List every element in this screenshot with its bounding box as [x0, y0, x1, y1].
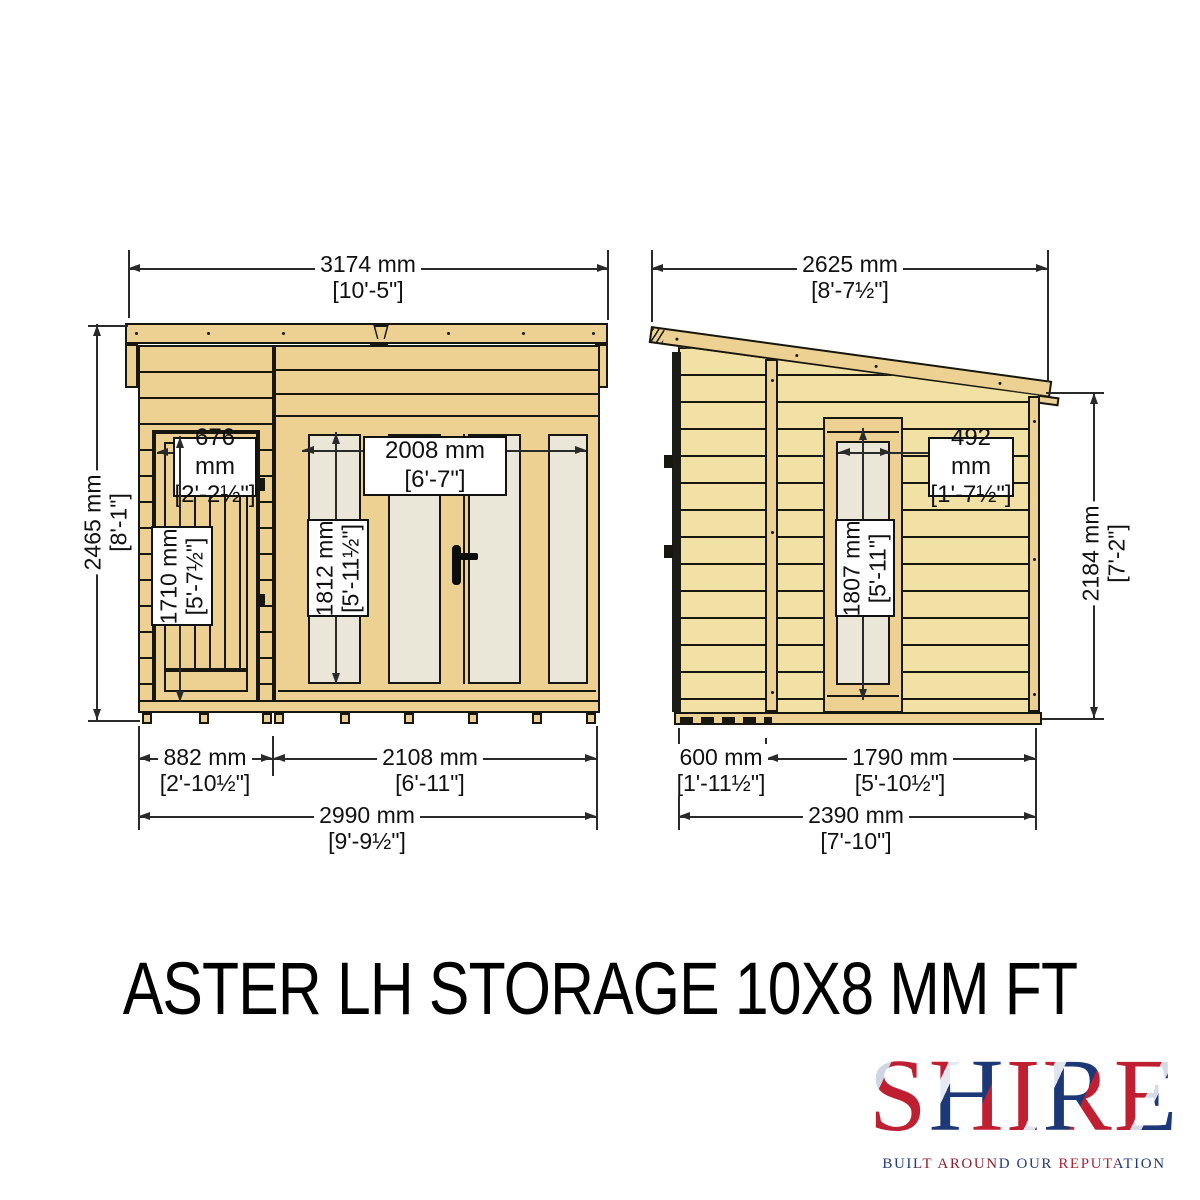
skid-foot — [340, 713, 350, 724]
drawing-canvas: 3174 mm [10'-5"] 2465 mm[8'-1"] 676 mm[2… — [0, 0, 1200, 1200]
nail-dot — [771, 531, 774, 534]
side-corner-edge — [672, 352, 681, 712]
shire-tagline: BUILT AROUND OUR REPUTATION — [858, 1156, 1190, 1173]
door-handle — [452, 545, 461, 585]
glazed-side-window-right — [548, 434, 588, 684]
dim-door-width: 676 mm[2'-2½"] — [173, 437, 257, 497]
nail-dot — [135, 332, 138, 335]
skid-foot — [262, 713, 272, 724]
dim-base-total: 2990 mm [9'-9½"] — [267, 802, 467, 855]
shire-logo-text: SHIRE — [858, 1044, 1190, 1148]
dim-door-height: 1710 mm[5'-7½"] — [151, 526, 213, 626]
glazed-unit-sill-line — [278, 690, 596, 692]
skid-foot — [468, 713, 478, 724]
dim-side-base-left: 600 mm [1'-11½"] — [651, 744, 791, 797]
front-wall-topband — [274, 345, 600, 417]
skid-foot — [274, 713, 284, 724]
dim-window-height: 1807 mm[5'-11"] — [835, 519, 895, 617]
nail-dot — [874, 365, 877, 368]
dim-base-right: 2108 mm [6'-11"] — [330, 744, 530, 797]
nail-dot — [282, 332, 285, 335]
dim-front-roof-width: 3174 mm [10'-5"] — [258, 251, 478, 304]
door-hinge — [256, 478, 265, 491]
skid-foot — [532, 713, 542, 724]
dim-base-left: 882 mm [2'-10½"] — [135, 744, 275, 797]
dim-window-width: 492 mm[1'-7½"] — [928, 437, 1014, 497]
nail-dot — [771, 691, 774, 694]
floor-bearers — [680, 717, 772, 723]
skid-foot — [142, 713, 152, 724]
dim-side-height: 2184 mm[7'-2"] — [1034, 483, 1174, 623]
nail-dot — [675, 337, 678, 340]
door-handle-lever — [460, 553, 478, 560]
nail-dot — [207, 332, 210, 335]
dim-glaze-width: 2008 mm[6'-7"] — [363, 436, 507, 496]
front-fascia-board — [125, 323, 608, 344]
skid-foot — [199, 713, 209, 724]
side-floor — [674, 712, 1042, 725]
roof-return-left — [125, 344, 138, 388]
drawing-title: ASTER LH STORAGE 10X8 MM FT — [123, 946, 1078, 1031]
roof-apex-notch — [370, 325, 392, 339]
dim-side-base-total: 2390 mm [7'-10"] — [756, 802, 956, 855]
door-hinge — [664, 455, 673, 468]
nail-dot — [447, 332, 450, 335]
nail-dot — [522, 332, 525, 335]
nail-dot — [1033, 420, 1036, 423]
front-floor — [138, 700, 600, 713]
door-hinge — [256, 594, 265, 607]
skid-foot — [586, 713, 596, 724]
dim-side-roof-width: 2625 mm [8'-7½"] — [740, 251, 960, 304]
nail-dot — [771, 379, 774, 382]
dim-glaze-height: 1812 mm[5'-11½"] — [307, 519, 369, 617]
brand-logo: SHIRE BUILT AROUND OUR REPUTATION — [858, 1044, 1190, 1173]
nail-dot — [1033, 693, 1036, 696]
nail-dot — [795, 354, 798, 357]
door-hinge — [664, 545, 673, 558]
side-divider-trim — [765, 359, 778, 712]
nail-dot — [592, 332, 595, 335]
storage-door-bottom-rail — [164, 670, 248, 692]
dim-side-base-right: 1790 mm [5'-10½"] — [800, 744, 1000, 797]
nail-dot — [998, 382, 1001, 385]
skid-foot — [404, 713, 414, 724]
roof-end-grain — [651, 328, 665, 343]
